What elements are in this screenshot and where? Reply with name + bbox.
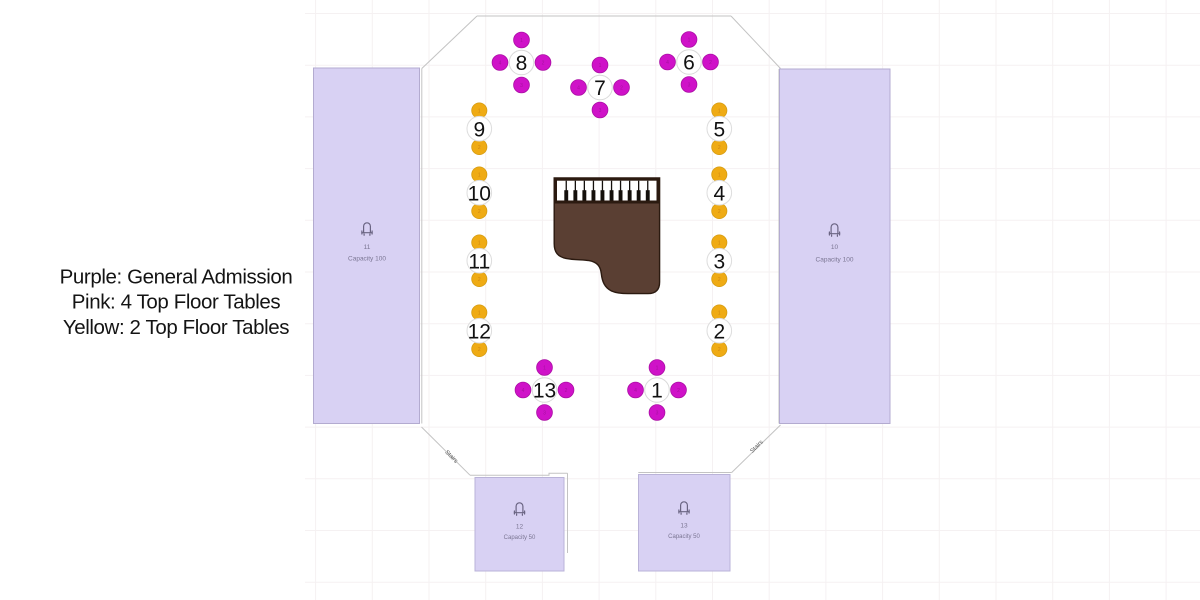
svg-text:3: 3 xyxy=(688,82,691,88)
svg-text:1: 1 xyxy=(688,37,691,43)
svg-text:Pink: 4 Top Floor Tables: Pink: 4 Top Floor Tables xyxy=(72,291,281,314)
svg-text:2: 2 xyxy=(478,145,481,151)
svg-text:1: 1 xyxy=(478,108,481,114)
svg-text:3: 3 xyxy=(543,410,546,416)
svg-text:11: 11 xyxy=(468,250,490,273)
svg-text:2: 2 xyxy=(542,60,545,66)
svg-text:3: 3 xyxy=(599,108,602,114)
svg-text:1: 1 xyxy=(656,365,659,371)
svg-text:7: 7 xyxy=(594,77,606,100)
svg-text:2: 2 xyxy=(718,145,721,151)
svg-text:2: 2 xyxy=(478,347,481,353)
svg-text:11: 11 xyxy=(364,244,371,251)
svg-text:2: 2 xyxy=(677,388,680,394)
svg-text:Capacity 100: Capacity 100 xyxy=(348,255,386,262)
svg-text:2: 2 xyxy=(713,320,725,343)
svg-text:1: 1 xyxy=(718,240,721,246)
svg-text:5: 5 xyxy=(713,118,725,141)
svg-text:8: 8 xyxy=(516,52,528,75)
svg-text:6: 6 xyxy=(683,52,695,75)
svg-text:13: 13 xyxy=(680,522,688,529)
svg-text:1: 1 xyxy=(543,365,546,371)
svg-text:1: 1 xyxy=(718,172,721,178)
svg-text:4: 4 xyxy=(634,388,637,394)
svg-text:1: 1 xyxy=(718,310,721,316)
svg-text:2: 2 xyxy=(478,277,481,283)
svg-text:2: 2 xyxy=(718,209,721,215)
svg-text:4: 4 xyxy=(666,60,669,66)
svg-text:2: 2 xyxy=(565,388,568,394)
svg-text:12: 12 xyxy=(468,320,491,343)
svg-text:2: 2 xyxy=(620,85,623,91)
svg-text:3: 3 xyxy=(656,410,659,416)
svg-text:1: 1 xyxy=(478,310,481,316)
svg-text:Yellow: 2 Top Floor Tables: Yellow: 2 Top Floor Tables xyxy=(63,316,289,339)
svg-text:4: 4 xyxy=(577,85,580,91)
svg-text:4: 4 xyxy=(499,60,502,66)
svg-text:3: 3 xyxy=(713,250,725,273)
svg-text:1: 1 xyxy=(651,380,663,403)
svg-text:10: 10 xyxy=(831,244,839,251)
svg-text:2: 2 xyxy=(478,209,481,215)
svg-text:Capacity 50: Capacity 50 xyxy=(668,534,700,540)
svg-text:1: 1 xyxy=(599,63,602,69)
svg-text:4: 4 xyxy=(522,388,525,394)
svg-text:9: 9 xyxy=(473,118,485,141)
svg-text:2: 2 xyxy=(718,347,721,353)
svg-text:4: 4 xyxy=(713,182,725,205)
svg-text:2: 2 xyxy=(709,60,712,66)
svg-text:10: 10 xyxy=(468,182,491,205)
svg-text:3: 3 xyxy=(520,83,523,89)
svg-text:1: 1 xyxy=(520,38,523,44)
svg-text:1: 1 xyxy=(478,172,481,178)
svg-text:12: 12 xyxy=(516,523,524,530)
svg-text:2: 2 xyxy=(718,277,721,283)
svg-text:1: 1 xyxy=(718,108,721,114)
svg-text:1: 1 xyxy=(478,240,481,246)
svg-text:Capacity 50: Capacity 50 xyxy=(504,535,536,541)
svg-text:Capacity 100: Capacity 100 xyxy=(816,256,854,263)
svg-text:Purple: General Admission: Purple: General Admission xyxy=(60,266,293,289)
svg-text:13: 13 xyxy=(533,380,556,403)
